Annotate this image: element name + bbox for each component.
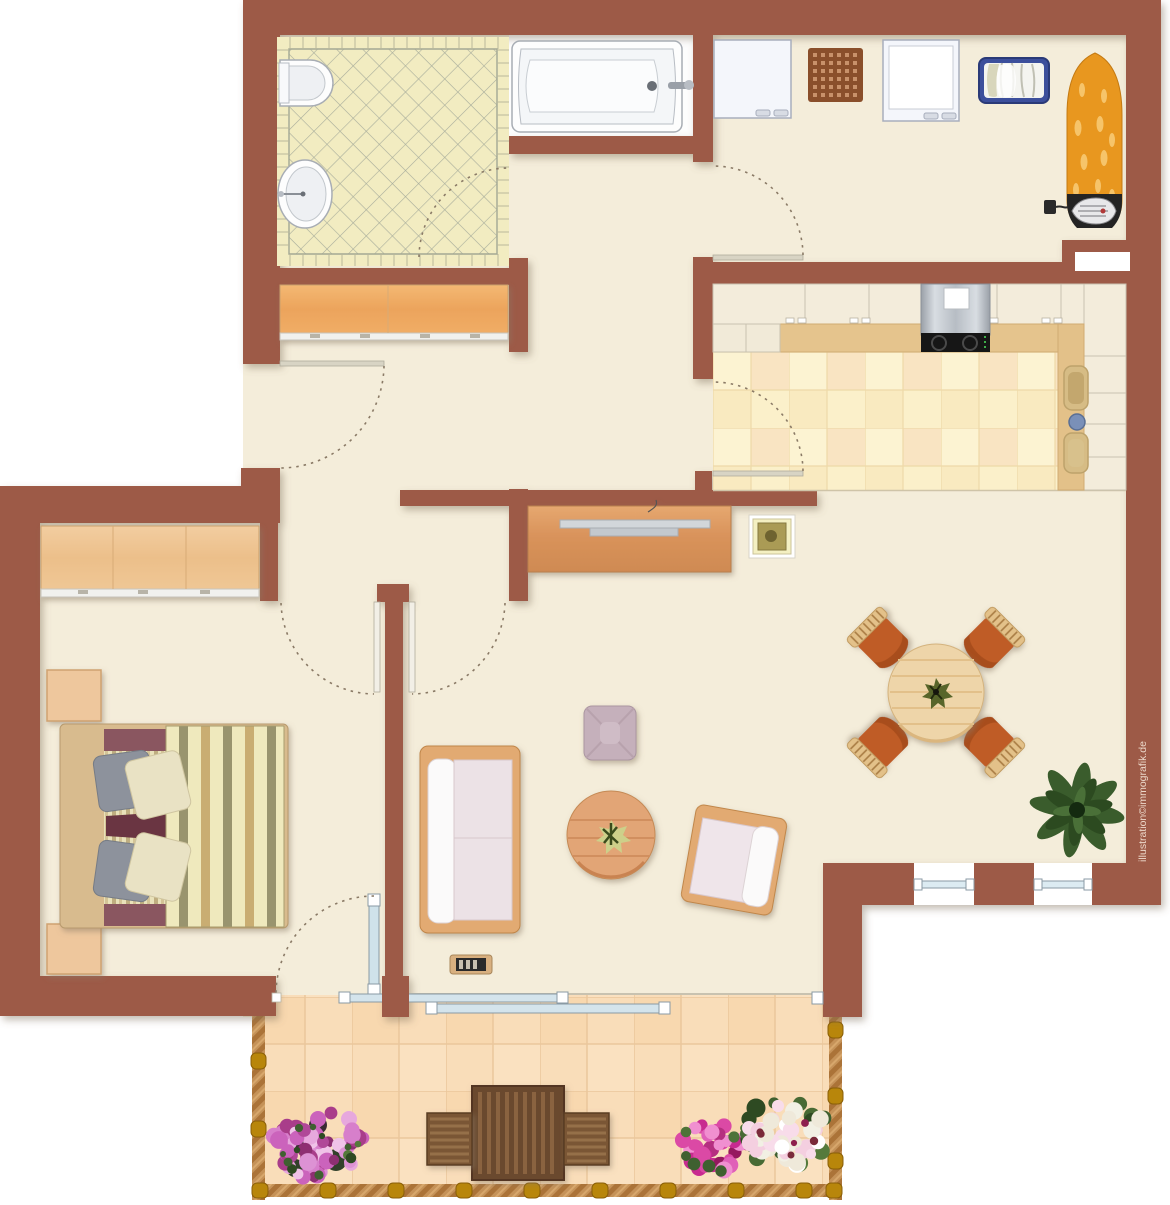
svg-text:illustration©immografik.de: illustration©immografik.de	[1137, 741, 1149, 862]
